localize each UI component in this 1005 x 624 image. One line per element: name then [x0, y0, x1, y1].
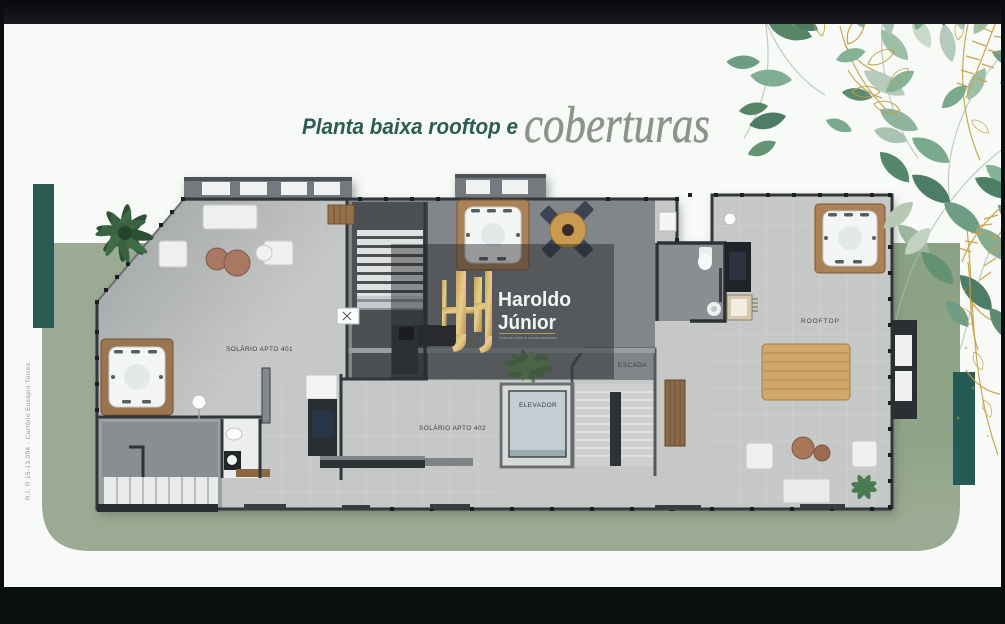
svg-text:SOLÁRIO APTO 402: SOLÁRIO APTO 402 — [419, 423, 486, 432]
svg-text:Haroldo: Haroldo — [498, 289, 571, 311]
svg-text:R.I. R 15-13.094 - Cartório Eu: R.I. R 15-13.094 - Cartório Eusápio Torr… — [26, 360, 32, 500]
svg-text:ROOFTOP: ROOFTOP — [801, 318, 840, 325]
svg-text:Júnior: Júnior — [498, 312, 556, 334]
svg-text:coberturas: coberturas — [524, 97, 710, 154]
svg-text:Planta baixa rooftop e: Planta baixa rooftop e — [302, 114, 518, 139]
svg-text:ESCADA: ESCADA — [618, 362, 647, 369]
svg-text:SOLÁRIO APTO 401: SOLÁRIO APTO 401 — [226, 344, 293, 353]
svg-text:CONSTRUTORA E INCORPORADORA: CONSTRUTORA E INCORPORADORA — [499, 336, 557, 340]
svg-text:ELEVADOR: ELEVADOR — [519, 402, 557, 409]
